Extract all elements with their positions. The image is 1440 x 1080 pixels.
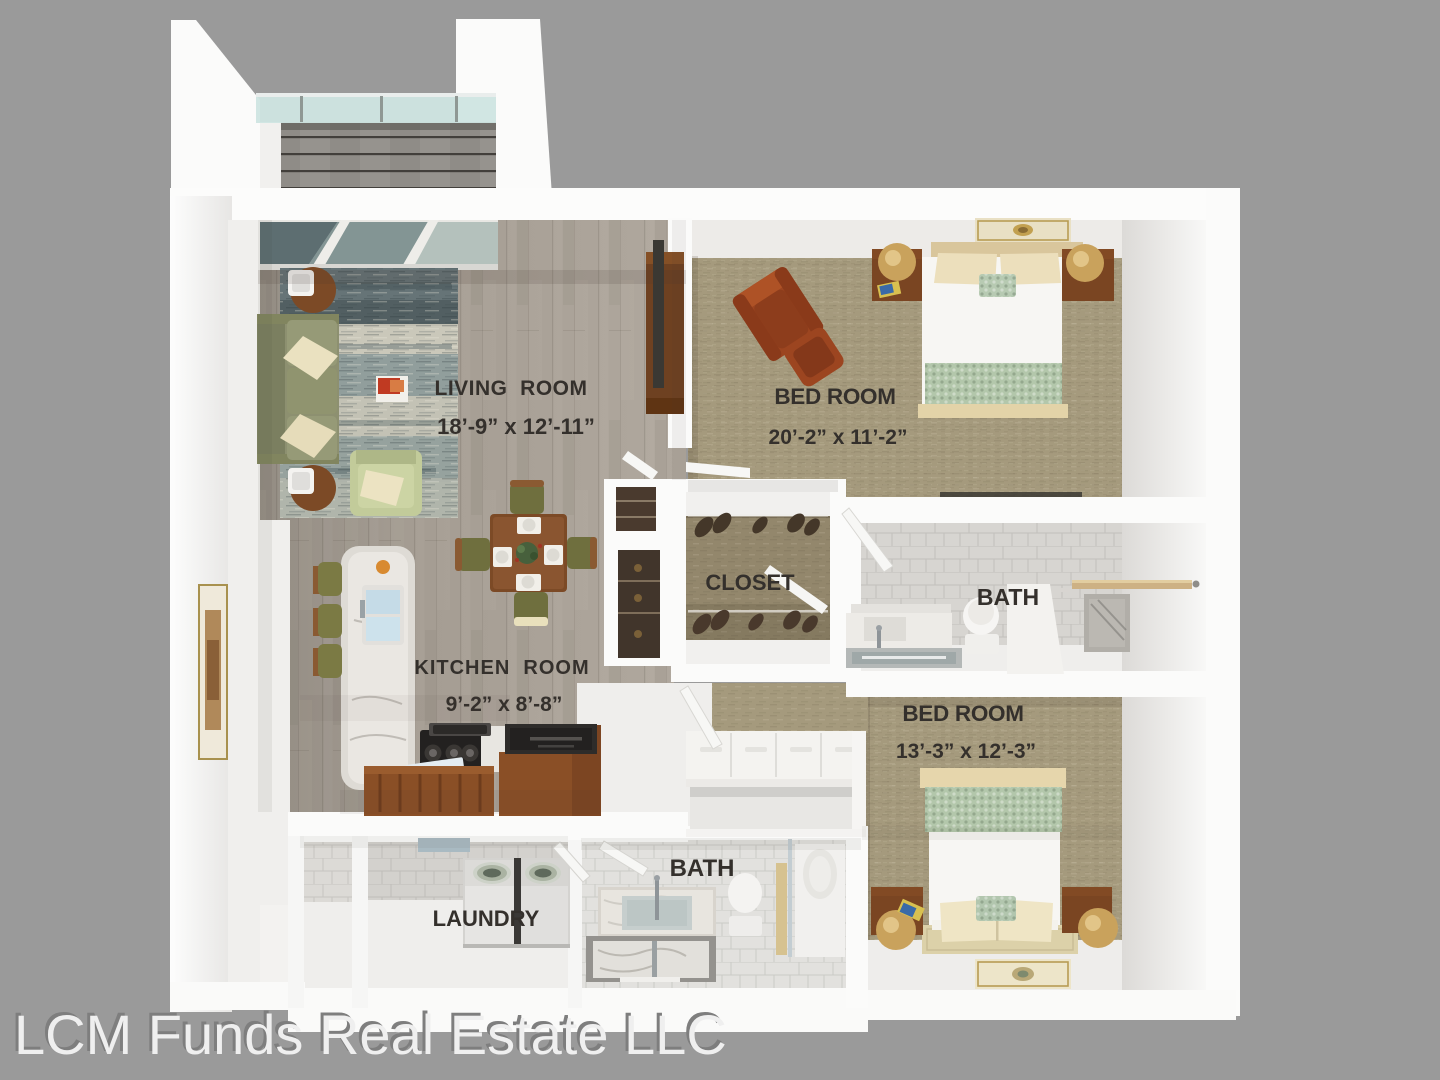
svg-text:LIVING ROOM: LIVING ROOM [435,377,588,400]
svg-text:CLOSET: CLOSET [705,570,795,595]
svg-text:BATH: BATH [670,855,735,882]
svg-text:LCM Funds Real Estate LLC: LCM Funds Real Estate LLC [14,1003,727,1066]
svg-text:BED ROOM: BED ROOM [774,384,895,409]
svg-text:KITCHEN ROOM: KITCHEN ROOM [414,657,589,679]
svg-text:BATH: BATH [977,584,1039,610]
svg-text:LAUNDRY: LAUNDRY [433,906,540,931]
svg-text:20’-2” x 11’-2”: 20’-2” x 11’-2” [769,426,908,449]
svg-text:18’-9” x 12’-11”: 18’-9” x 12’-11” [437,414,595,439]
svg-text:13’-3” x 12’-3”: 13’-3” x 12’-3” [896,740,1036,763]
svg-text:BED ROOM: BED ROOM [902,701,1023,726]
